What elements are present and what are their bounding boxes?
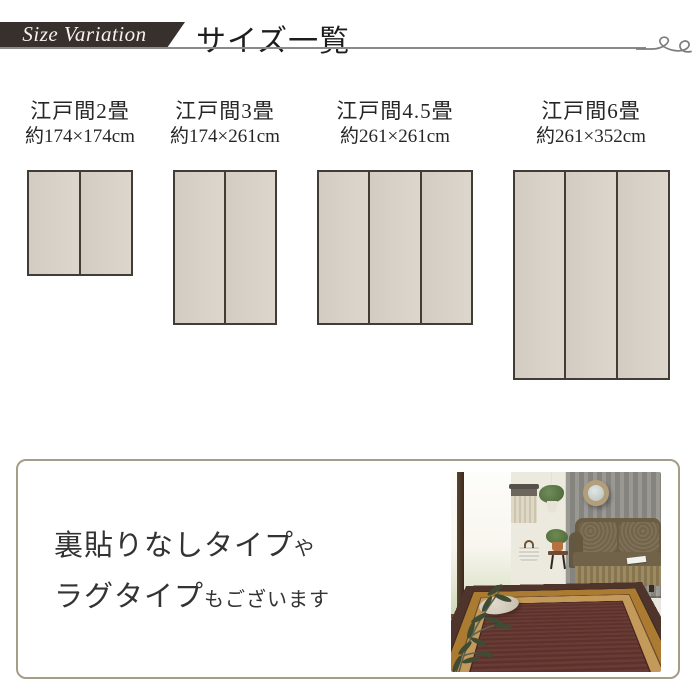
room-photo <box>451 472 661 672</box>
mat-panel <box>420 172 471 323</box>
size-option-edoma-4-5jo: 江戸間4.5畳 約261×261cm <box>315 98 475 325</box>
page-title: サイズ一覧 <box>196 16 350 60</box>
macrame-holder <box>547 501 557 513</box>
mat-panel <box>319 172 368 323</box>
other-types-note-box: 裏貼りなしタイプや ラグタイプもございます <box>16 459 680 679</box>
mat-diagram <box>317 170 473 325</box>
size-name: 江戸間6畳 <box>506 98 676 125</box>
mat-diagram <box>513 170 670 380</box>
mat-panel <box>224 172 275 323</box>
mat-diagram <box>27 170 133 276</box>
olive-branch <box>451 564 529 672</box>
sofa-seat <box>573 552 661 567</box>
mat-panel <box>29 172 79 274</box>
header-divider-line <box>0 47 646 49</box>
size-option-edoma-6jo: 江戸間6畳 約261×352cm <box>506 98 676 380</box>
size-name: 江戸間2畳 <box>0 98 160 125</box>
plant-pot <box>552 542 563 551</box>
mat-panel <box>175 172 224 323</box>
size-dimensions: 約261×261cm <box>315 125 475 148</box>
mat-panel <box>564 172 616 378</box>
mat-panel <box>368 172 419 323</box>
size-option-edoma-3jo: 江戸間3畳 約174×261cm <box>145 98 305 325</box>
wall-hanging <box>511 489 537 523</box>
flourish-ornament <box>636 33 698 67</box>
badge-label: Size Variation <box>22 22 146 46</box>
mat-panel <box>616 172 668 378</box>
mat-panel <box>79 172 131 274</box>
mat-diagram <box>173 170 277 325</box>
note-line-1: 裏貼りなしタイプや <box>54 523 330 574</box>
sofa-cushion <box>579 522 617 552</box>
size-dimensions: 約174×261cm <box>145 125 305 148</box>
round-mirror <box>583 480 609 506</box>
size-option-edoma-2jo: 江戸間2畳 約174×174cm <box>0 98 160 276</box>
size-variation-badge: Size Variation <box>0 22 185 48</box>
mat-panel <box>515 172 565 378</box>
woven-basket <box>519 546 539 563</box>
note-line-2: ラグタイプもございます <box>54 574 330 625</box>
size-dimensions: 約261×352cm <box>506 125 676 148</box>
size-name: 江戸間3畳 <box>145 98 305 125</box>
note-text: 裏貼りなしタイプや ラグタイプもございます <box>54 523 330 625</box>
size-name: 江戸間4.5畳 <box>315 98 475 125</box>
size-variation-section: Size Variation サイズ一覧 江戸間2畳 約174×174cm 江戸… <box>0 0 700 700</box>
sofa-cushion <box>619 522 659 552</box>
size-dimensions: 約174×174cm <box>0 125 160 148</box>
